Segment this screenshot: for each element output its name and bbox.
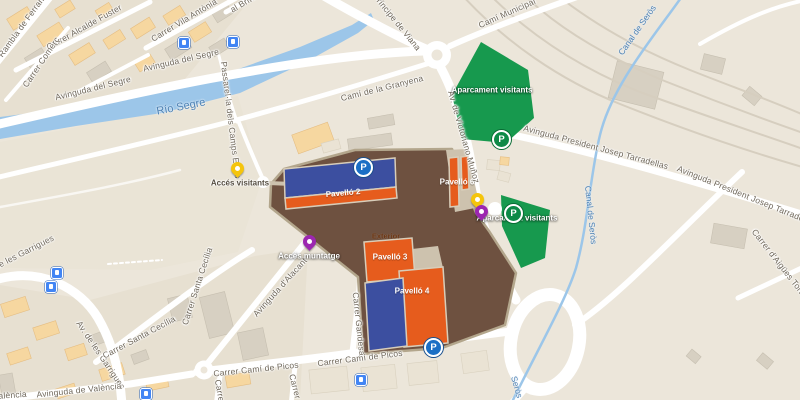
parking-icon-picos[interactable]: P (424, 338, 443, 357)
map-base-layer (0, 0, 800, 400)
pavello-6-hall-a (449, 157, 459, 207)
parking-letter: P (510, 208, 516, 219)
bus-stop-icon-1[interactable] (178, 37, 190, 49)
parking-letter: P (498, 134, 504, 145)
south-blue-hall (365, 278, 407, 351)
bus-stop-icon-5[interactable] (140, 388, 152, 400)
parking-icon-visitants-top[interactable]: P (492, 130, 511, 149)
parking-letter: P (360, 162, 366, 173)
parking-letter: P (430, 342, 436, 353)
bus-stop-icon-3[interactable] (51, 267, 63, 279)
bus-stop-icon-6[interactable] (355, 374, 367, 386)
parking-icon-visitants-right[interactable]: P (504, 204, 523, 223)
map-canvas[interactable]: Rambla de Ferran Carrer Alcalde Fuster C… (0, 0, 800, 400)
bus-stop-icon-2[interactable] (227, 36, 239, 48)
bus-stop-icon-4[interactable] (45, 281, 57, 293)
pavello-6-hall-b (461, 156, 469, 190)
parking-icon-pavello2[interactable]: P (354, 158, 373, 177)
